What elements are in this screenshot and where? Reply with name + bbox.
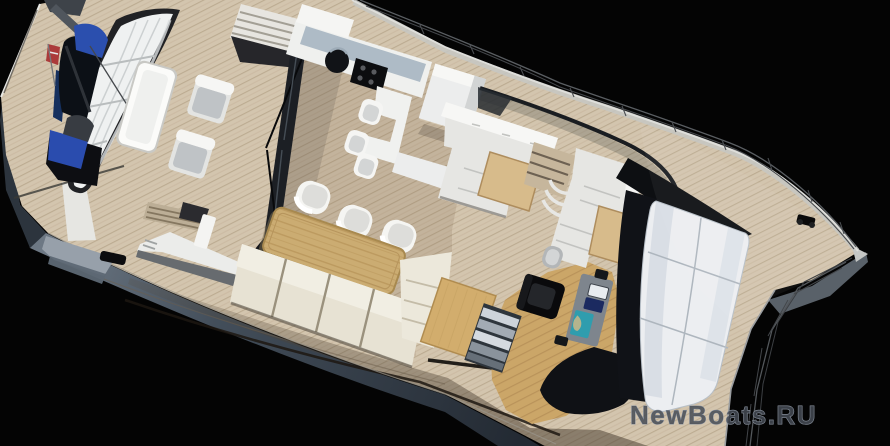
svg-text:NewBoats.RU: NewBoats.RU [630,400,817,430]
